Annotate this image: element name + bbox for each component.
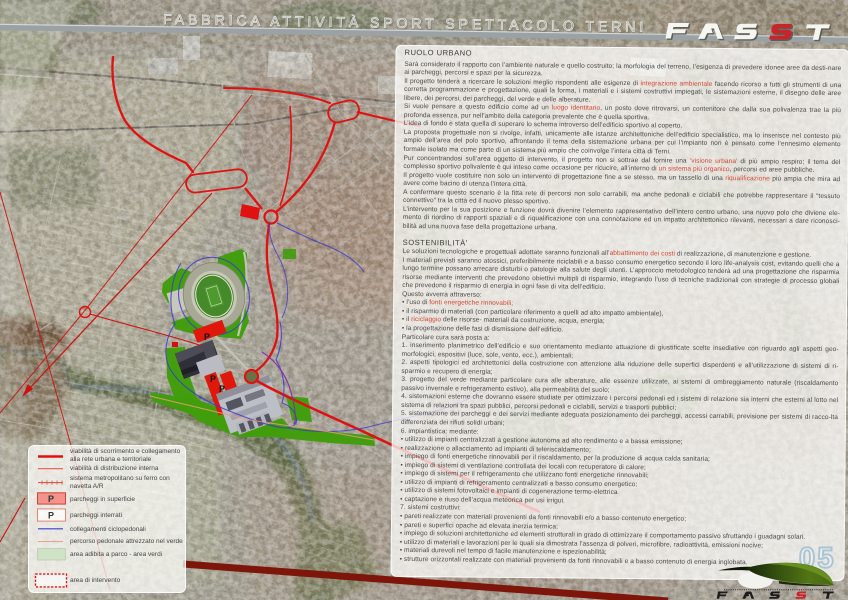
svg-text:P: P: [204, 332, 210, 342]
svg-text:P: P: [48, 511, 54, 521]
svg-text:P: P: [48, 494, 54, 504]
svg-text:P: P: [210, 374, 216, 384]
